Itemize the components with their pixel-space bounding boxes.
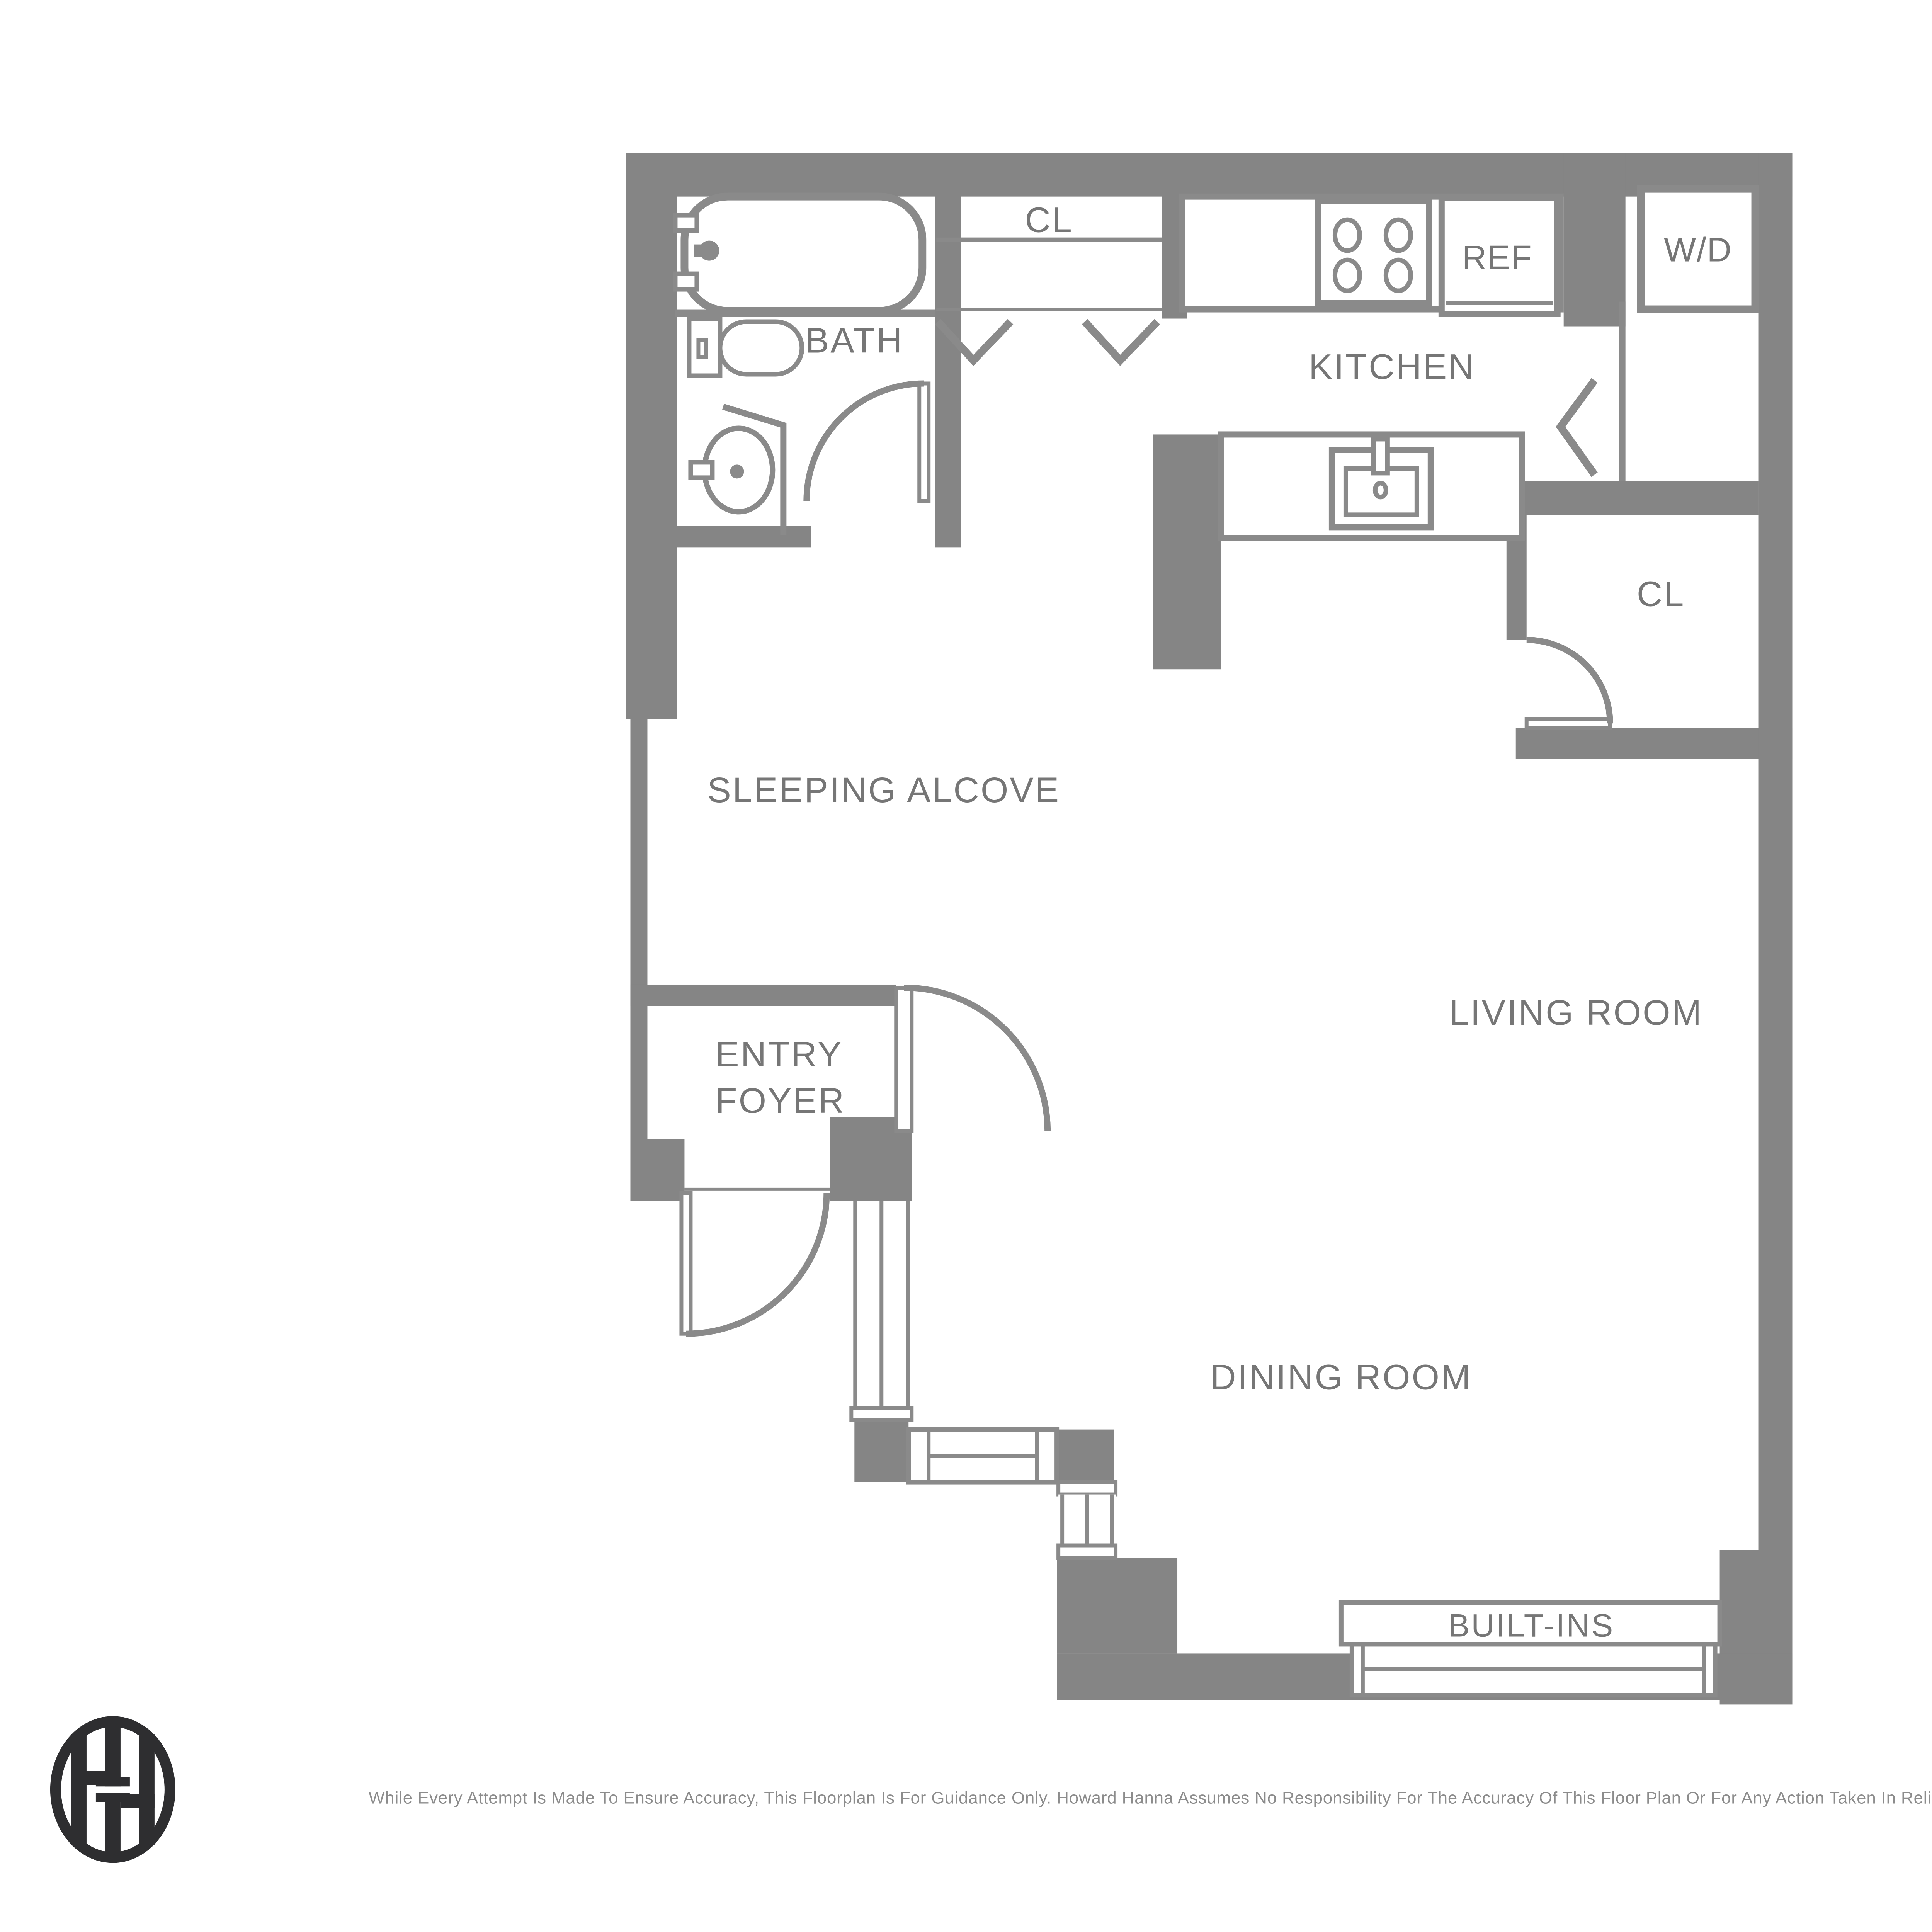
logo-bar bbox=[71, 1734, 87, 1845]
entry-door-arc bbox=[686, 1193, 827, 1334]
howard-hanna-logo-icon bbox=[56, 1721, 170, 1857]
wall-bath-right bbox=[935, 195, 961, 548]
foyer-door-leaf bbox=[896, 988, 912, 1131]
label-built-ins: BUILT-INS bbox=[1448, 1607, 1614, 1643]
label-closet-top: CL bbox=[1025, 201, 1073, 240]
footer: While Every Attempt Is Made To Ensure Ac… bbox=[56, 1721, 1932, 1857]
closet-top bbox=[936, 240, 1162, 361]
wall-right bbox=[1759, 153, 1793, 1550]
window-sill bbox=[851, 1408, 912, 1420]
bathroom bbox=[675, 197, 929, 535]
tub-handle-icon bbox=[675, 274, 697, 289]
logo-h-crossbar bbox=[71, 1771, 105, 1785]
label-kitchen: KITCHEN bbox=[1309, 347, 1476, 386]
disclaimer-text: While Every Attempt Is Made To Ensure Ac… bbox=[369, 1788, 1932, 1807]
label-foyer: FOYER bbox=[715, 1081, 845, 1121]
kitchen-faucet-icon bbox=[1374, 439, 1388, 473]
logo-h-stem bbox=[105, 1793, 121, 1857]
label-washer-dryer: W/D bbox=[1664, 231, 1732, 269]
bifold-door-icon bbox=[1561, 380, 1595, 474]
bath-door-leaf bbox=[919, 383, 929, 501]
tub-spout-icon bbox=[694, 245, 706, 257]
wall-left-thick bbox=[626, 153, 677, 719]
closet-door-arc bbox=[1527, 640, 1610, 723]
label-ref: REF bbox=[1462, 238, 1532, 277]
label-living-room: LIVING ROOM bbox=[1449, 993, 1703, 1032]
wall-corner-window-a bbox=[854, 1420, 908, 1482]
foyer-door-arc bbox=[904, 988, 1048, 1131]
wall-closet-right-bottom bbox=[1516, 728, 1793, 759]
window-sill bbox=[1058, 1546, 1116, 1558]
window-sill bbox=[1058, 1482, 1116, 1495]
logo-h-stem bbox=[105, 1721, 121, 1786]
wall-kitchen-wd-divider bbox=[1564, 153, 1626, 327]
closet-right bbox=[1527, 640, 1610, 728]
windows bbox=[851, 1201, 1116, 1558]
toilet-bowl-icon bbox=[720, 322, 802, 374]
label-closet-right: CL bbox=[1637, 574, 1685, 614]
bath-sink-tap-icon bbox=[690, 462, 712, 478]
wall-foyer-top bbox=[630, 985, 896, 1006]
bathtub-icon bbox=[684, 197, 922, 311]
bath-sink-drain-icon bbox=[730, 464, 744, 478]
bath-door-arc bbox=[806, 383, 924, 501]
bifold-door-icon bbox=[1085, 322, 1157, 361]
wall-kitchen-closet-band bbox=[1507, 481, 1759, 515]
stove-icon bbox=[1318, 201, 1429, 303]
wall-wd-closet-left bbox=[1619, 302, 1626, 481]
wall-corner-window-b bbox=[1057, 1430, 1114, 1482]
floorplan-page: BATH CL KITCHEN REF W/D CL SLEEPING ALCO… bbox=[0, 0, 1932, 1932]
tub-handle-icon bbox=[675, 215, 697, 231]
wall-left-thin bbox=[630, 719, 647, 1139]
toilet-flush-icon bbox=[698, 340, 706, 357]
floorplan: BATH CL KITCHEN REF W/D CL SLEEPING ALCO… bbox=[0, 0, 1932, 1932]
wall-foyer-corner bbox=[630, 1139, 684, 1201]
entry-door-leaf bbox=[681, 1193, 690, 1334]
logo-bar bbox=[139, 1734, 155, 1845]
closet-door-leaf bbox=[1527, 719, 1610, 728]
logo-h-crossbar bbox=[121, 1794, 155, 1808]
label-dining-room: DINING ROOM bbox=[1210, 1358, 1472, 1397]
label-sleeping-alcove: SLEEPING ALCOVE bbox=[707, 770, 1060, 810]
wall-island bbox=[1153, 434, 1221, 669]
label-entry: ENTRY bbox=[715, 1035, 843, 1074]
label-bath: BATH bbox=[805, 321, 903, 361]
walls bbox=[626, 153, 1792, 1705]
wall-bath-bottom bbox=[675, 526, 811, 547]
wall-corner-sw bbox=[1057, 1558, 1177, 1654]
